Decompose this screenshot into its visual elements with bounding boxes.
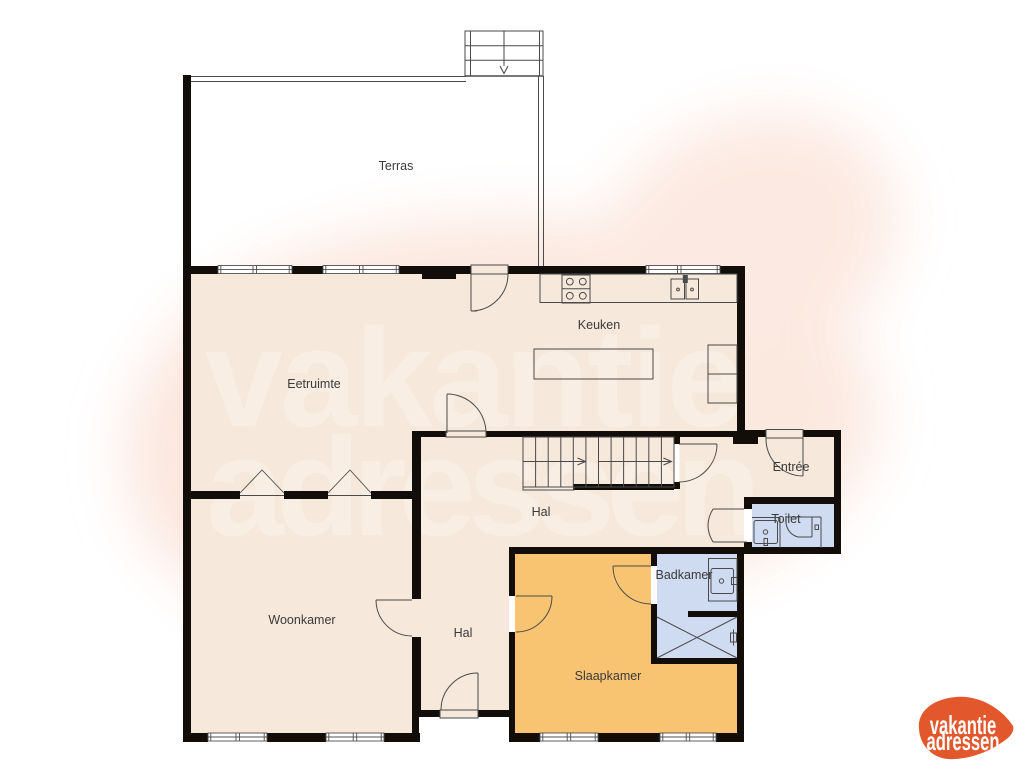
- svg-text:Hal: Hal: [532, 505, 551, 519]
- svg-text:Slaapkamer: Slaapkamer: [575, 669, 642, 683]
- svg-text:Eetruimte: Eetruimte: [287, 377, 341, 391]
- svg-text:Hal: Hal: [454, 626, 473, 640]
- svg-text:Entrée: Entrée: [773, 460, 810, 474]
- svg-text:Keuken: Keuken: [578, 318, 620, 332]
- svg-text:Toilet: Toilet: [771, 512, 801, 526]
- svg-text:Badkamer: Badkamer: [656, 568, 713, 582]
- svg-text:adressen: adressen: [926, 726, 999, 756]
- svg-text:Terras: Terras: [379, 159, 414, 173]
- svg-text:Woonkamer: Woonkamer: [268, 613, 335, 627]
